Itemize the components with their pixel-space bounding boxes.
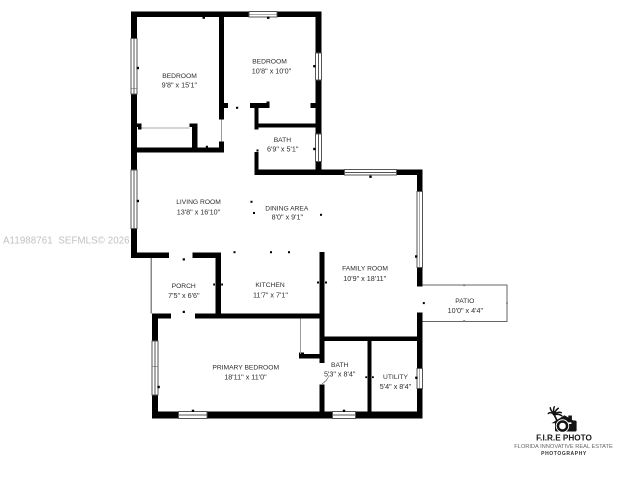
svg-text:18'11" x 11'0": 18'11" x 11'0" <box>224 373 267 382</box>
svg-text:PORCH: PORCH <box>172 283 196 290</box>
svg-text:9'8" x 15'1": 9'8" x 15'1" <box>162 81 198 90</box>
svg-text:PHOTOGRAPHY: PHOTOGRAPHY <box>541 451 587 457</box>
svg-text:F.I.R.E PHOTO: F.I.R.E PHOTO <box>536 433 592 442</box>
svg-text:5'4" x 8'4": 5'4" x 8'4" <box>380 382 412 391</box>
svg-text:10'9" x 18'11": 10'9" x 18'11" <box>343 274 386 283</box>
svg-text:FAMILY ROOM: FAMILY ROOM <box>342 265 388 272</box>
svg-text:7'5" x 6'6": 7'5" x 6'6" <box>168 291 200 300</box>
svg-text:BATH: BATH <box>274 137 292 144</box>
svg-text:5'3" x 8'4": 5'3" x 8'4" <box>324 369 356 378</box>
svg-text:BATH: BATH <box>331 362 349 369</box>
svg-text:10'0" x 4'4": 10'0" x 4'4" <box>448 306 484 315</box>
svg-text:6'9" x 5'1": 6'9" x 5'1" <box>267 145 299 154</box>
svg-text:PRIMARY BEDROOM: PRIMARY BEDROOM <box>212 364 279 371</box>
svg-text:13'8" x 16'10": 13'8" x 16'10" <box>177 207 221 216</box>
svg-text:FLORIDA INNOVATIVE REAL ESTATE: FLORIDA INNOVATIVE REAL ESTATE <box>514 444 613 450</box>
svg-text:PATIO: PATIO <box>455 298 474 305</box>
svg-text:KITCHEN: KITCHEN <box>255 282 285 289</box>
svg-text:UTILITY: UTILITY <box>383 374 408 381</box>
svg-text:A11988761 SEFMLS© 2026: A11988761 SEFMLS© 2026 <box>3 236 130 247</box>
svg-text:11'7" x 7'1": 11'7" x 7'1" <box>253 290 288 299</box>
svg-text:10'8" x 10'0": 10'8" x 10'0" <box>252 66 292 75</box>
svg-text:LIVING ROOM: LIVING ROOM <box>176 199 221 206</box>
svg-text:BEDROOM: BEDROOM <box>162 73 197 80</box>
svg-text:DINING AREA: DINING AREA <box>265 205 309 212</box>
svg-text:BEDROOM: BEDROOM <box>252 59 287 66</box>
svg-text:8'0" x 9'1": 8'0" x 9'1" <box>272 212 304 221</box>
